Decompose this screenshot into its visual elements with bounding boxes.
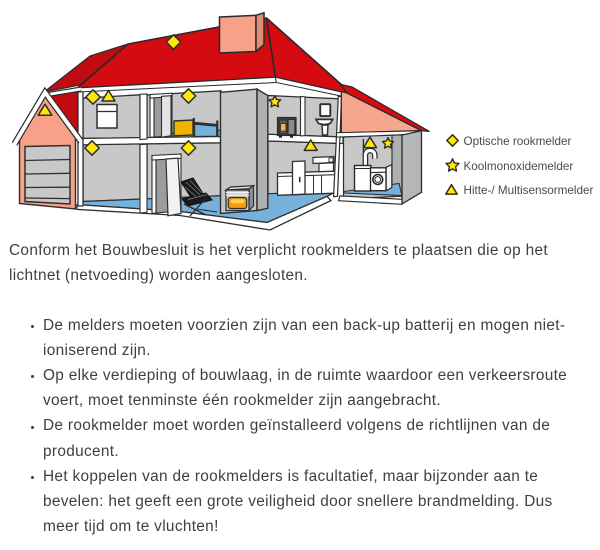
svg-text:Hitte-/ Multisensormelder: Hitte-/ Multisensormelder [464,184,594,197]
svg-text:Koolmonoxidemelder: Koolmonoxidemelder [464,160,574,173]
svg-text:Optische rookmelder: Optische rookmelder [464,135,572,148]
